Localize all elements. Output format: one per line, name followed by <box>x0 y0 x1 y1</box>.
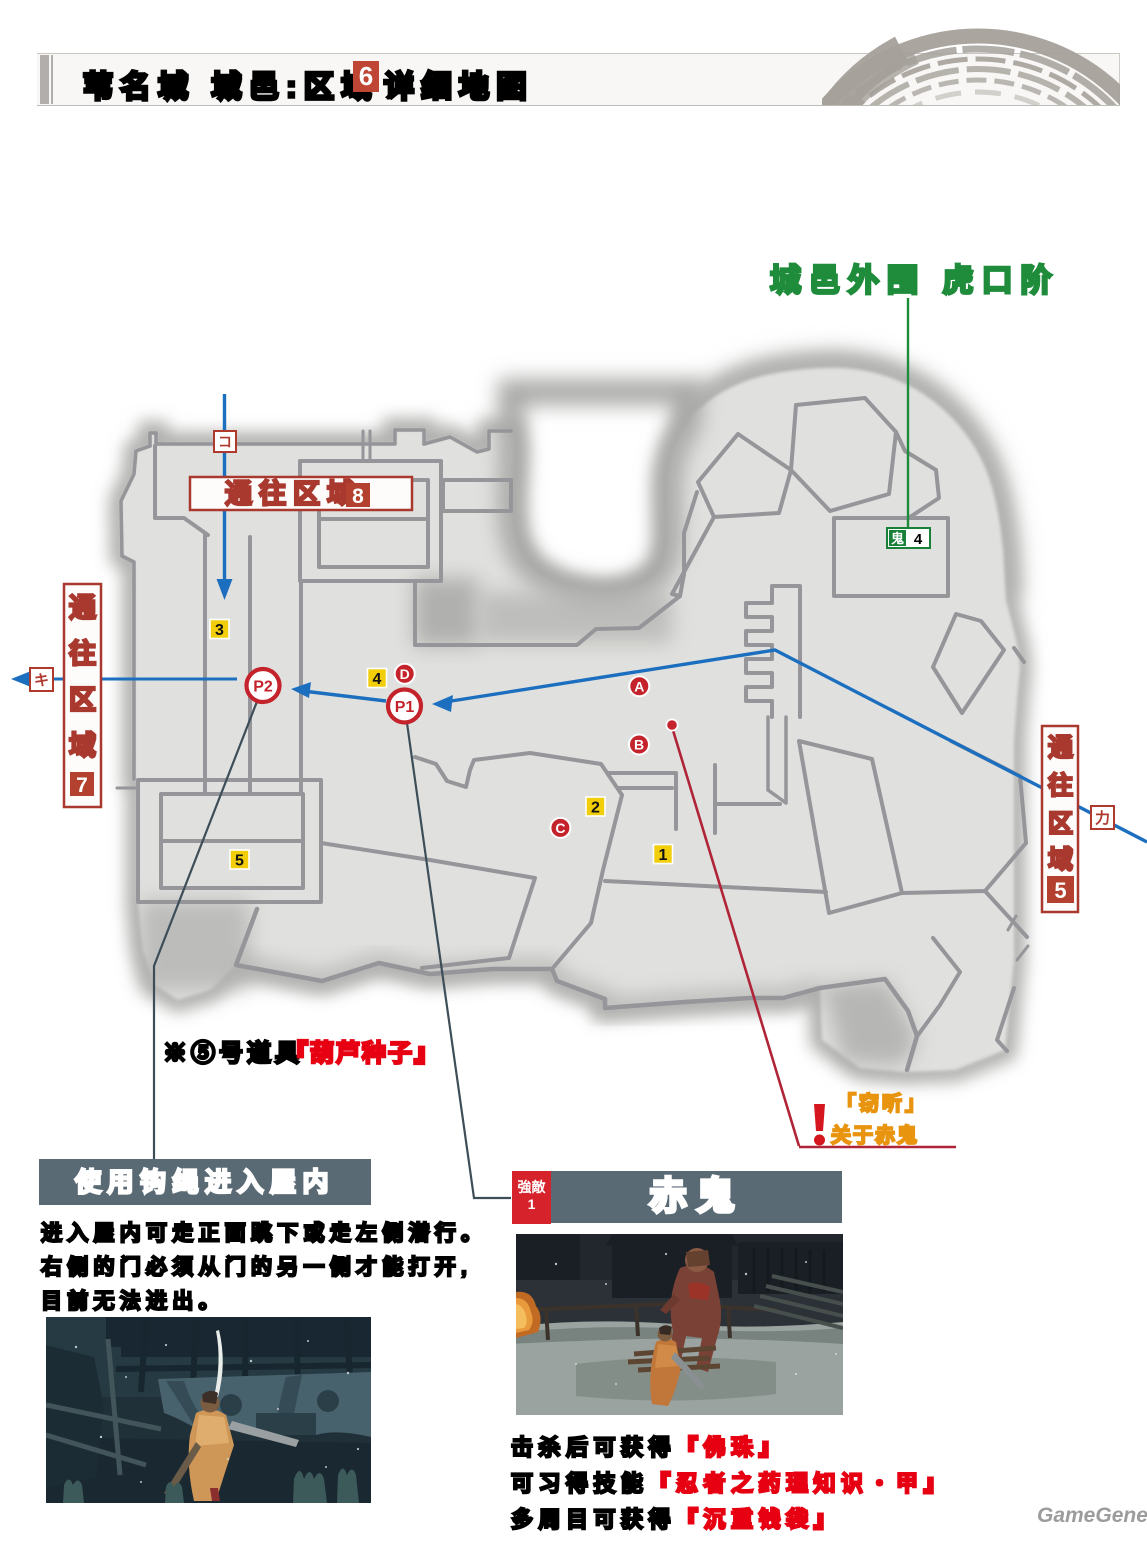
svg-text:4: 4 <box>914 531 923 548</box>
svg-text:キ: キ <box>34 672 49 689</box>
svg-text:「窃听」: 「窃听」 <box>836 1091 928 1115</box>
svg-text:往: 往 <box>69 638 96 669</box>
svg-text:『葫芦种子』: 『葫芦种子』 <box>284 1039 440 1067</box>
svg-text:力: 力 <box>1095 809 1110 827</box>
svg-text:コ: コ <box>218 434 232 450</box>
svg-text:P2: P2 <box>253 679 273 696</box>
svg-text:C: C <box>555 820 565 836</box>
svg-text:A: A <box>634 678 644 694</box>
svg-text:P1: P1 <box>395 699 415 716</box>
svg-text:1: 1 <box>659 847 668 864</box>
svg-text:域: 域 <box>69 731 96 761</box>
svg-text:D: D <box>400 666 410 682</box>
svg-text:通: 通 <box>69 593 96 623</box>
svg-text:B: B <box>634 737 644 753</box>
svg-text:域: 域 <box>1048 846 1073 874</box>
svg-text:7: 7 <box>76 774 88 797</box>
svg-text:城邑外围 虎口阶: 城邑外围 虎口阶 <box>770 263 1060 298</box>
svg-text:关于赤鬼: 关于赤鬼 <box>831 1123 919 1147</box>
svg-text:往: 往 <box>1048 771 1073 800</box>
svg-text:2: 2 <box>591 800 600 817</box>
svg-text:区: 区 <box>1048 810 1073 838</box>
svg-text:通: 通 <box>1048 734 1073 762</box>
svg-text:3: 3 <box>215 622 224 639</box>
svg-text:鬼: 鬼 <box>891 531 904 546</box>
svg-text:5: 5 <box>1054 878 1066 903</box>
svg-text:4: 4 <box>373 671 382 688</box>
svg-text:区: 区 <box>69 685 96 715</box>
svg-text:8: 8 <box>352 485 364 508</box>
svg-text:※⑤号道具: ※⑤号道具 <box>163 1039 303 1067</box>
svg-text:通往区域: 通往区域 <box>225 478 361 509</box>
svg-text:5: 5 <box>235 853 244 870</box>
